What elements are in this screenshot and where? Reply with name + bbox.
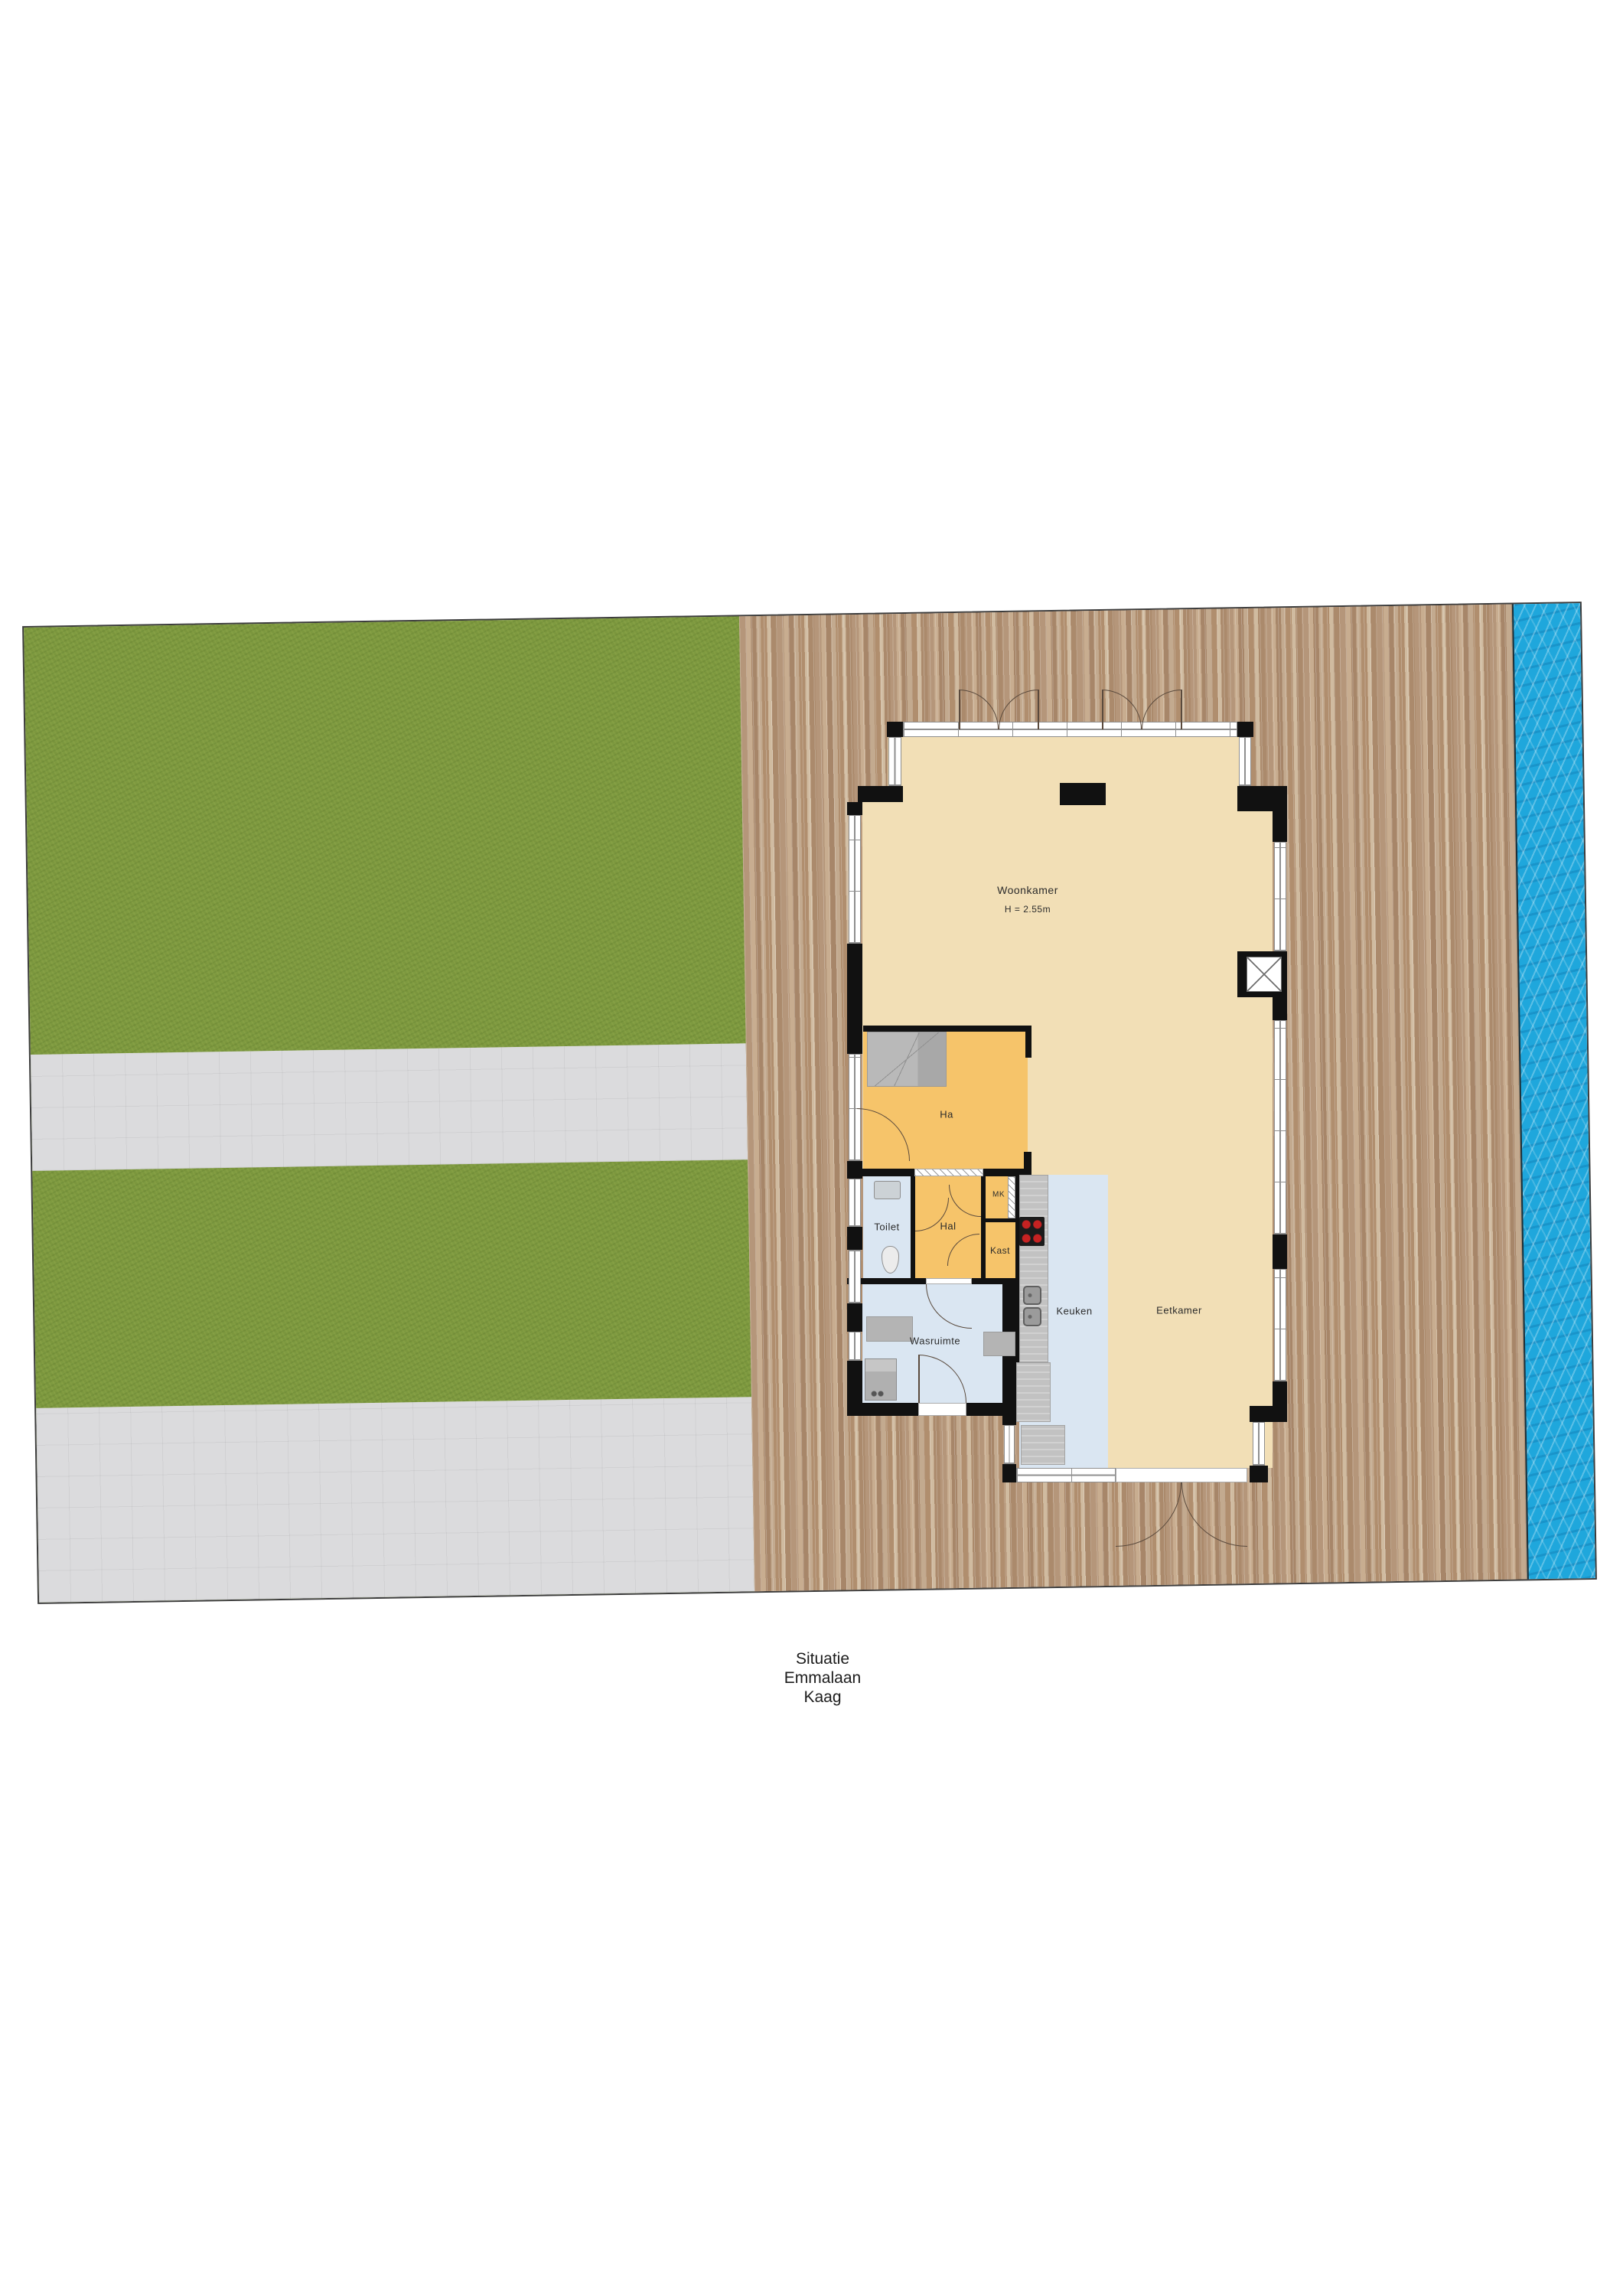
wall-segment xyxy=(1250,1466,1268,1482)
sink-icon xyxy=(1023,1286,1041,1305)
door-arc xyxy=(1102,690,1142,729)
wall-segment xyxy=(1002,1464,1016,1482)
room-label-keuken: Keuken xyxy=(1056,1306,1092,1317)
door-opening xyxy=(926,1278,972,1284)
wall-segment xyxy=(1273,1234,1287,1269)
room-height-note: H = 2.55m xyxy=(1005,904,1051,915)
door-leaf xyxy=(1038,690,1039,729)
sink-icon xyxy=(1023,1307,1041,1326)
chimney-block xyxy=(1060,783,1106,805)
door-leaf xyxy=(1102,690,1103,729)
window xyxy=(1004,1425,1015,1464)
door-arc xyxy=(1116,1482,1181,1547)
worktop-block xyxy=(983,1332,1015,1356)
room-label-toilet: Toilet xyxy=(874,1221,899,1233)
wall-segment xyxy=(858,786,903,802)
wall-segment xyxy=(847,1303,862,1332)
wall-segment xyxy=(863,1026,1031,1032)
wall-segment xyxy=(1273,811,1287,842)
wall-segment xyxy=(1273,1381,1287,1406)
x-window-icon xyxy=(1247,957,1282,992)
staircase xyxy=(867,1032,947,1087)
window xyxy=(903,722,1237,737)
washing-machine-icon xyxy=(865,1358,897,1401)
door-leaf xyxy=(959,690,960,729)
wall-segment xyxy=(847,802,862,815)
caption-line-1: Situatie xyxy=(784,1649,861,1668)
door-arc xyxy=(1181,1482,1247,1547)
door-opening xyxy=(1116,1468,1247,1482)
room-label-ha: Ha xyxy=(940,1109,953,1120)
window xyxy=(1253,1422,1265,1466)
window xyxy=(849,1250,861,1303)
window xyxy=(1274,1020,1286,1234)
worktop-block xyxy=(866,1316,913,1342)
wall-segment xyxy=(1273,997,1287,1020)
washbasin-icon xyxy=(874,1181,901,1199)
sliding-door xyxy=(914,1169,983,1176)
door-opening xyxy=(918,1403,966,1416)
door-leaf xyxy=(918,1355,920,1403)
window xyxy=(849,1179,861,1227)
wall-segment xyxy=(847,1403,918,1416)
kitchen-cabinet xyxy=(1021,1425,1065,1465)
door-arc xyxy=(999,690,1038,729)
wall-segment xyxy=(1002,1416,1016,1425)
wall-segment xyxy=(1237,786,1287,811)
window xyxy=(1274,842,1286,951)
drawing-caption: Situatie Emmalaan Kaag xyxy=(784,1649,861,1707)
room-label-hal: Hal xyxy=(940,1221,956,1232)
window xyxy=(1274,1269,1286,1381)
wall-segment xyxy=(981,1176,986,1280)
mk-vent-hatch xyxy=(1008,1176,1015,1218)
room-label-eetkamer: Eetkamer xyxy=(1156,1305,1202,1316)
wall-segment xyxy=(887,722,903,737)
window xyxy=(849,815,861,944)
kitchen-counter xyxy=(1019,1175,1048,1362)
window xyxy=(888,737,901,786)
door-arc xyxy=(1142,690,1181,729)
wall-segment xyxy=(847,1169,914,1176)
kitchen-counter xyxy=(1016,1362,1051,1422)
room-label-wasruimte: Wasruimte xyxy=(910,1336,960,1347)
wall-segment xyxy=(1025,1032,1031,1058)
wall-segment xyxy=(847,1227,862,1250)
door-arc xyxy=(959,690,999,729)
window xyxy=(849,1332,861,1361)
wall-segment xyxy=(983,1218,1018,1222)
cooktop-icon xyxy=(1019,1217,1045,1246)
window xyxy=(1239,737,1251,786)
room-label-mk: MK xyxy=(992,1191,1005,1199)
wall-segment xyxy=(1250,1406,1287,1422)
house-floorplan: Woonkamer H = 2.55m Ha Toilet Hal MK Kas… xyxy=(0,0,1623,2296)
wall-segment xyxy=(847,944,862,1054)
room-label-kast: Kast xyxy=(990,1245,1010,1256)
room-label-woonkamer: Woonkamer xyxy=(997,884,1058,896)
door-leaf xyxy=(1181,690,1182,729)
caption-line-2: Emmalaan xyxy=(784,1668,861,1688)
window xyxy=(1016,1468,1116,1482)
situation-floorplan: Woonkamer H = 2.55m Ha Toilet Hal MK Kas… xyxy=(0,0,1623,2296)
wall-segment xyxy=(1237,722,1253,737)
caption-line-3: Kaag xyxy=(784,1688,861,1707)
